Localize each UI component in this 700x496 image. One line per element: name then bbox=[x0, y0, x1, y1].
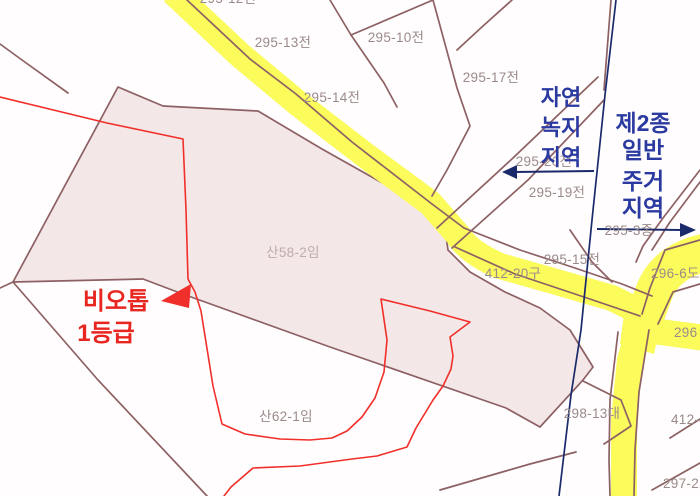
zoning-label-nature-green: 자연 녹지 지역 bbox=[541, 85, 581, 170]
zone-text-line: 일반 bbox=[622, 137, 664, 163]
parcel-label-412-4: 412-4 bbox=[671, 412, 700, 427]
zone-text-line: 지역 bbox=[622, 195, 664, 221]
zone-text-line: 주거 bbox=[622, 168, 664, 194]
parcel-label-412-20: 412-20구 bbox=[485, 266, 542, 281]
parcel-label-295-14: 295-14전 bbox=[304, 90, 361, 105]
parcel-label-san62-1: 산62-1임 bbox=[259, 409, 313, 424]
parcel-label-partial-top: 295-12전 bbox=[200, 0, 257, 6]
nature-green-arrow-line bbox=[514, 171, 594, 172]
parcel-label-295-13: 295-13전 bbox=[255, 35, 312, 50]
biotope-text-line: 비오톱 bbox=[83, 288, 149, 315]
zone-text-line: 녹지 bbox=[541, 115, 581, 140]
parcel-label-295-10: 295-10전 bbox=[368, 30, 425, 45]
parcel-label-295-19: 295-19전 bbox=[529, 185, 586, 200]
parcel-label-295-17: 295-17전 bbox=[463, 70, 520, 85]
parcel-label-297-2: 297-2 bbox=[663, 476, 699, 491]
zone-text-line: 제2종 bbox=[615, 110, 670, 136]
biotope-text-line: 1등급 bbox=[77, 320, 135, 347]
parcel-label-298-13: 298-13대 bbox=[564, 406, 621, 421]
parcel-label-295-15: 295-15전 bbox=[544, 252, 601, 267]
zone-text-line: 지역 bbox=[541, 145, 581, 170]
parcel-label-296-6: 296-6도 bbox=[651, 266, 700, 281]
zone-text-line: 자연 bbox=[541, 85, 581, 110]
parcel-label-296: 296 bbox=[674, 325, 697, 340]
cadastral-map-canvas[interactable]: 295-13전 295-10전 295-14전 295-17전 295-20전 … bbox=[0, 0, 700, 496]
parcel-label-295-3: 295-3종 bbox=[605, 223, 654, 238]
parcel-label-san58-2: 산58-2임 bbox=[266, 245, 320, 260]
